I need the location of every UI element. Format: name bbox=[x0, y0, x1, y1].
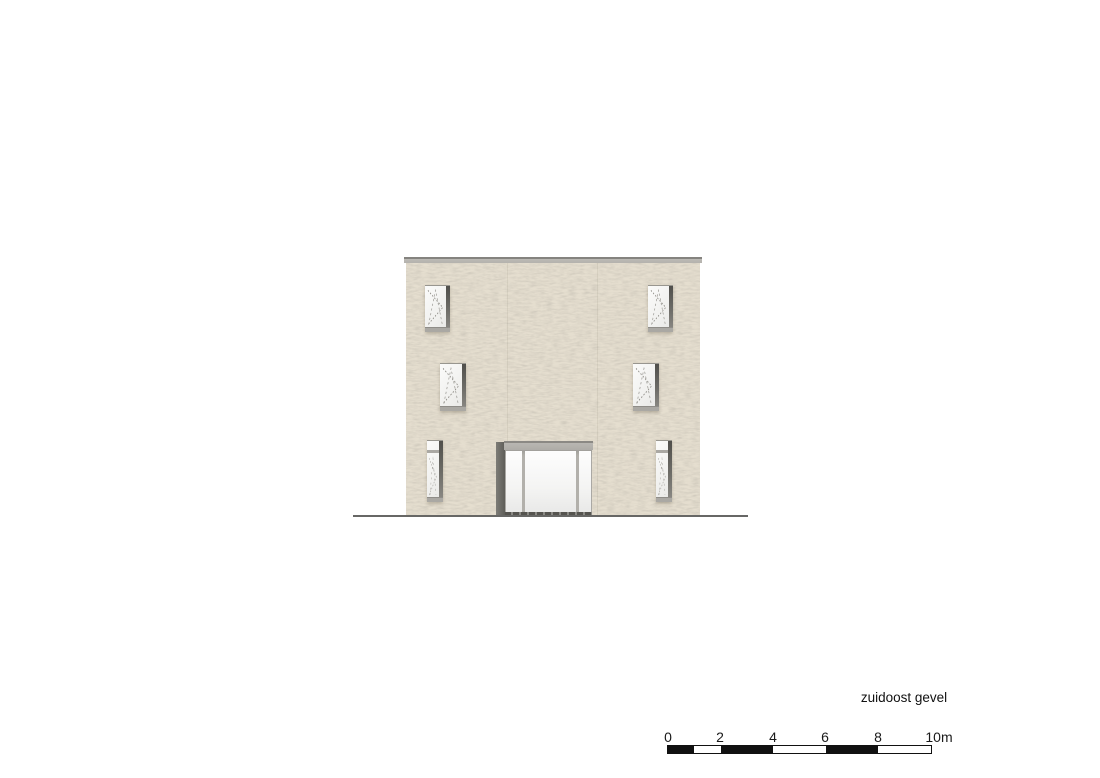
scale-segment bbox=[694, 746, 720, 753]
window-opening-symbol-icon bbox=[634, 366, 654, 406]
window-opening-symbol-icon bbox=[649, 288, 668, 327]
scale-segment bbox=[668, 746, 694, 753]
elevation-sheet: zuidoost gevel 0 2 4 6 8 10m bbox=[0, 0, 1100, 778]
window-bottom-right bbox=[656, 440, 672, 502]
window-middle-left bbox=[440, 363, 466, 411]
window-jamb bbox=[669, 286, 673, 332]
scale-segment bbox=[826, 746, 879, 753]
window-top-left bbox=[425, 285, 450, 332]
scale-bar-labels: 0 2 4 6 8 10m bbox=[0, 729, 1100, 745]
window-jamb bbox=[655, 364, 659, 411]
facade-panel-joint bbox=[597, 263, 598, 516]
scale-segment bbox=[878, 746, 931, 753]
entrance-pane-left bbox=[506, 451, 522, 512]
window-opening-symbol-icon bbox=[441, 366, 461, 406]
scale-segment bbox=[773, 746, 826, 753]
scale-tick-label: 2 bbox=[716, 729, 724, 745]
scale-tick-label: 10m bbox=[925, 729, 952, 745]
entrance-canopy bbox=[504, 441, 593, 450]
facade bbox=[406, 263, 700, 516]
window-sill bbox=[648, 327, 673, 332]
window-sill bbox=[440, 406, 466, 411]
scale-tick-label: 8 bbox=[874, 729, 882, 745]
window-bottom-left bbox=[427, 440, 443, 502]
window-opening-symbol-icon bbox=[428, 455, 438, 497]
window-jamb bbox=[446, 286, 450, 332]
window-sill bbox=[656, 497, 672, 502]
window-jamb bbox=[668, 441, 672, 502]
drawing-caption: zuidoost gevel bbox=[861, 690, 947, 705]
window-sill bbox=[633, 406, 659, 411]
entrance-glazing bbox=[505, 450, 592, 512]
entrance-pane-right bbox=[579, 451, 591, 512]
window-jamb bbox=[462, 364, 466, 411]
window-sill bbox=[425, 327, 450, 332]
window-middle-right bbox=[633, 363, 659, 411]
window-opening-symbol-icon bbox=[426, 288, 445, 327]
ground-line bbox=[353, 515, 748, 517]
window-top-right bbox=[648, 285, 673, 332]
window-opening-symbol-icon bbox=[657, 455, 667, 497]
scale-bar bbox=[667, 745, 932, 754]
window-jamb bbox=[439, 441, 443, 502]
window-sill bbox=[427, 497, 443, 502]
scale-tick-label: 6 bbox=[821, 729, 829, 745]
scale-segment bbox=[721, 746, 774, 753]
entrance-reveal-shadow bbox=[496, 442, 505, 516]
scale-tick-label: 0 bbox=[664, 729, 672, 745]
entrance-door-pane bbox=[525, 451, 576, 512]
scale-tick-label: 4 bbox=[769, 729, 777, 745]
